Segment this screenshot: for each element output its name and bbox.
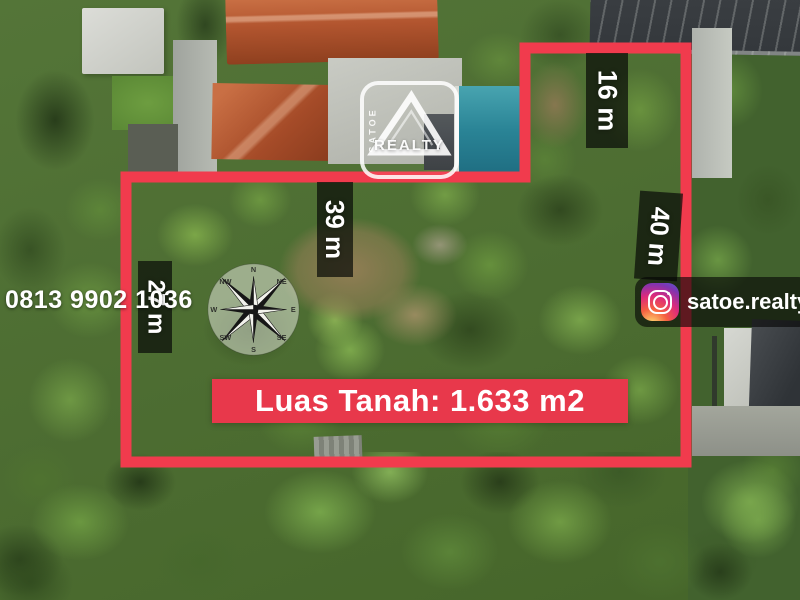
area-banner: Luas Tanah: 1.633 m2 bbox=[212, 379, 628, 423]
phone-number: 0813 9902 1036 bbox=[5, 286, 193, 315]
compass-letter-s: S bbox=[251, 345, 256, 354]
paved-path bbox=[173, 40, 217, 172]
instagram-icon bbox=[641, 283, 679, 321]
instagram-badge: satoe.realty bbox=[635, 277, 800, 327]
area-banner-text: Luas Tanah: 1.633 m2 bbox=[255, 383, 585, 419]
logo-triangle-icon bbox=[364, 85, 455, 176]
small-shed-roof bbox=[314, 435, 363, 459]
brand-logo: SATOE REALTY bbox=[360, 81, 459, 179]
side-path bbox=[692, 28, 732, 178]
compass-letter-nw: NW bbox=[219, 277, 231, 286]
compass-letter-w: W bbox=[210, 305, 217, 314]
white-flat-roof-building bbox=[82, 8, 164, 74]
logo-horizontal-text: REALTY bbox=[364, 137, 455, 154]
compass-letter-ne: NE bbox=[277, 277, 287, 286]
dimension-text-right: 40 m bbox=[641, 205, 676, 266]
swimming-pool bbox=[454, 86, 520, 174]
gravel-yard bbox=[692, 406, 800, 456]
instagram-flash-dot bbox=[667, 292, 670, 295]
dark-wall bbox=[128, 124, 178, 174]
instagram-handle: satoe.realty bbox=[687, 289, 800, 315]
terracotta-roof-secondary bbox=[211, 83, 332, 161]
bottom-tree-canopy bbox=[0, 452, 800, 600]
compass-rose: N NE E SE S SW W NW bbox=[205, 261, 302, 358]
dimension-text-inner: 39 m bbox=[320, 200, 351, 259]
dimension-label-inner: 39 m bbox=[317, 182, 353, 277]
compass-letter-sw: SW bbox=[220, 333, 232, 342]
compass-letter-se: SE bbox=[277, 333, 287, 342]
dimension-label-right: 40 m bbox=[634, 191, 683, 282]
terracotta-roof-main bbox=[225, 0, 439, 65]
dimension-text-top: 16 m bbox=[592, 70, 623, 132]
listing-image: 16 m 40 m 39 m 27 m N NE bbox=[0, 0, 800, 600]
compass-letter-e: E bbox=[291, 305, 296, 314]
compass-letter-n: N bbox=[251, 265, 256, 274]
dimension-label-top: 16 m bbox=[586, 53, 628, 148]
